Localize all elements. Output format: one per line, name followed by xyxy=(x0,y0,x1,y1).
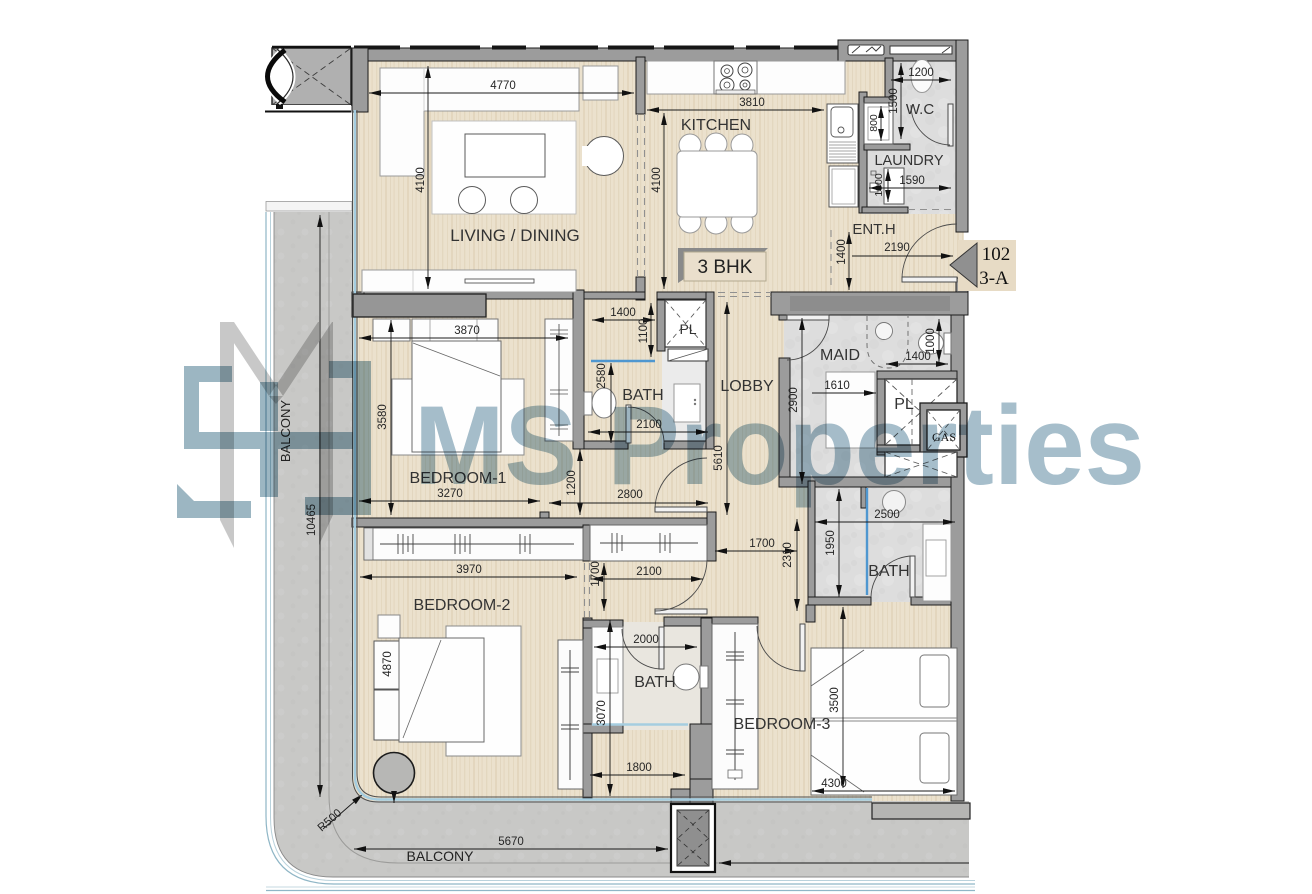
svg-text:1500: 1500 xyxy=(888,88,900,114)
svg-text:800: 800 xyxy=(868,114,880,132)
svg-text:4770: 4770 xyxy=(490,80,516,92)
svg-text:BEDROOM-2: BEDROOM-2 xyxy=(414,597,511,614)
svg-text:1700: 1700 xyxy=(590,561,602,587)
svg-text:4870: 4870 xyxy=(382,651,394,677)
svg-text:4100: 4100 xyxy=(651,167,663,193)
svg-text:1200: 1200 xyxy=(908,67,934,79)
svg-text:KITCHEN: KITCHEN xyxy=(681,117,751,134)
svg-text:W.C: W.C xyxy=(906,101,934,118)
svg-text:1100: 1100 xyxy=(638,319,650,344)
svg-text:LAUNDRY: LAUNDRY xyxy=(874,153,943,169)
svg-text:3970: 3970 xyxy=(456,564,482,576)
svg-text:1400: 1400 xyxy=(610,307,636,319)
svg-text:3870: 3870 xyxy=(454,325,480,337)
svg-text:4100: 4100 xyxy=(415,167,427,193)
svg-text:MS Properties: MS Properties xyxy=(414,383,1145,508)
svg-text:3500: 3500 xyxy=(829,687,841,713)
svg-text:5670: 5670 xyxy=(498,836,524,848)
svg-text:3070: 3070 xyxy=(596,700,608,726)
svg-text:2000: 2000 xyxy=(633,634,659,646)
svg-text:3-A: 3-A xyxy=(979,268,1009,289)
svg-text:LIVING / DINING: LIVING / DINING xyxy=(450,226,579,245)
svg-text:1000: 1000 xyxy=(925,328,937,354)
svg-text:3 BHK: 3 BHK xyxy=(698,257,753,278)
svg-text:BATH: BATH xyxy=(868,563,909,580)
svg-text:MAID: MAID xyxy=(820,347,860,364)
svg-text:1000: 1000 xyxy=(873,173,885,197)
svg-text:3810: 3810 xyxy=(739,97,765,109)
svg-text:102: 102 xyxy=(982,244,1011,265)
svg-text:1700: 1700 xyxy=(749,538,775,550)
svg-text:4300: 4300 xyxy=(821,778,847,790)
svg-text:PL: PL xyxy=(679,321,696,337)
svg-text:2310: 2310 xyxy=(782,542,794,568)
svg-text:ENT.H: ENT.H xyxy=(852,221,895,238)
svg-text:BATH: BATH xyxy=(634,674,675,691)
svg-text:2100: 2100 xyxy=(636,566,662,578)
svg-text:1950: 1950 xyxy=(825,530,837,556)
svg-text:BALCONY: BALCONY xyxy=(278,400,293,462)
svg-text:1800: 1800 xyxy=(626,762,652,774)
svg-text:2190: 2190 xyxy=(884,242,910,254)
svg-text:3580: 3580 xyxy=(377,404,389,430)
svg-text:BEDROOM-3: BEDROOM-3 xyxy=(734,716,831,733)
svg-text:1400: 1400 xyxy=(836,239,848,265)
svg-text:1590: 1590 xyxy=(899,175,925,187)
svg-text:BALCONY: BALCONY xyxy=(407,848,475,864)
svg-text:2500: 2500 xyxy=(874,509,900,521)
